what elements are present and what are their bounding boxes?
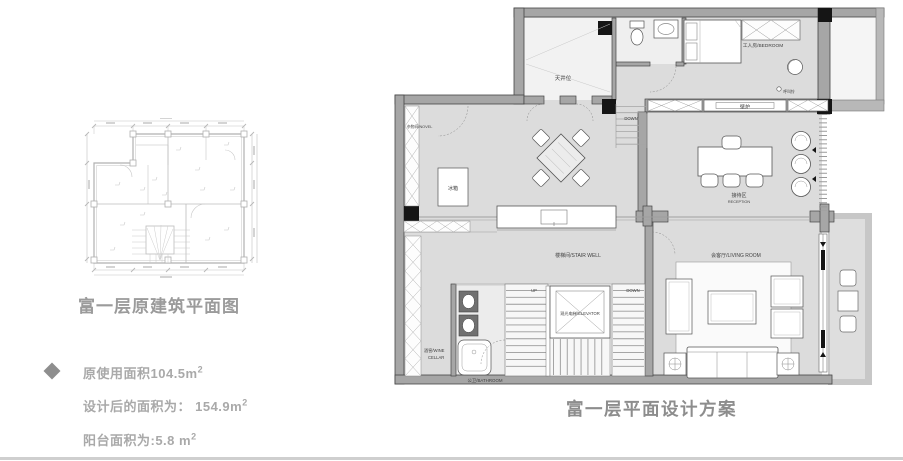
label-call-bell: 呼叫铃 [783,89,795,94]
reception-chair [722,136,741,149]
original-plan-title: 富一层原建筑平面图 [78,292,240,317]
dining-set [532,129,590,187]
stat-text: 设计后的面积为： 154.9m [83,399,242,414]
stat-superscript: 2 [198,365,204,375]
sink-counter [654,20,678,38]
call-bell-icon [777,87,781,91]
cabinet [648,100,702,111]
stat-original-area: 原使用面积104.5m2 [83,363,203,382]
label-up: UP [531,288,537,293]
balcony-stool [840,270,856,286]
toilet-tank [630,21,644,28]
wardrobe [742,20,800,40]
staircase [505,284,645,376]
basin-icon [463,295,475,309]
bottom-divider [0,457,903,460]
stat-balcony-area: 阳台面积为:5.8 m2 [83,430,197,449]
original-plan-staircase [132,225,190,263]
balcony-table [838,291,858,311]
room-label-wine-1: 酒窖/WINE [424,347,445,354]
balcony-furniture [838,270,858,332]
reception-chair [701,174,718,187]
toilet-icon [631,29,643,45]
round-lounge-chair [792,155,811,174]
design-floor-plan: 天井位 工人房/BEDROOM 呼叫铃 [388,4,892,390]
reception-chair [746,174,763,187]
original-plan-interior-walls [94,134,244,263]
label-down-top: DOWN [624,116,637,121]
bathtub-icon [458,340,491,375]
basin-icon [463,319,475,333]
armchair [771,276,803,307]
round-lounge-chair [792,178,811,197]
cabinet [788,100,828,111]
round-lounge-chair [792,132,811,151]
room-label-living-room: 会客厅/LIVING ROOM [711,252,761,259]
stat-superscript: 2 [242,398,248,408]
pillow [686,43,697,60]
tv-cabinet [666,279,692,334]
fireplace-wall [648,100,828,111]
label-down-stairs: DOWN [626,288,639,293]
pillow [686,23,697,40]
original-plan-annotation-marks [110,142,235,250]
label-elevator: 观光电梯/ELEVATOR [560,310,600,317]
room-label-wine-2: CELLAR [428,355,444,360]
room-label-reception-cn: 接待区 [731,192,746,199]
design-plan-title: 富一层平面设计方案 [566,396,737,421]
stat-text: 阳台面积为:5.8 m [83,433,191,448]
diamond-bullet-icon [44,363,61,380]
room-label-bathroom: 公卫/BATHROOM [467,378,502,383]
original-plan-columns [91,131,247,263]
label-fireplace: 壁炉 [740,104,750,111]
balcony [828,213,872,385]
balcony-stool [840,316,856,332]
room-label-reception-en: RECEPTION [728,200,750,204]
armchair [771,309,803,338]
stat-superscript: 2 [191,432,197,442]
design-presentation-page: 天井位 工人房/BEDROOM 呼叫铃 [0,0,903,461]
sofa [687,347,778,378]
room-label-stair-well: 楼梯间/STAIR WELL [555,252,601,259]
round-chair [788,60,803,75]
label-fridge: 冰箱 [448,185,458,192]
room-label-storage: 杂物间/NOVEL [407,124,432,129]
coffee-table [708,291,756,324]
reception-table [698,147,772,176]
original-plan-outline [94,134,244,263]
room-label-worker-room: 工人房/BEDROOM [743,42,784,49]
kitchen-island [497,206,616,230]
room-label-skylight: 天井位 [555,74,572,82]
reception-chair [723,174,740,187]
stat-designed-area: 设计后的面积为： 154.9m2 [83,396,248,415]
stat-text: 原使用面积104.5m [83,366,198,381]
window-band-right [819,114,827,372]
original-floor-plan [82,118,292,288]
